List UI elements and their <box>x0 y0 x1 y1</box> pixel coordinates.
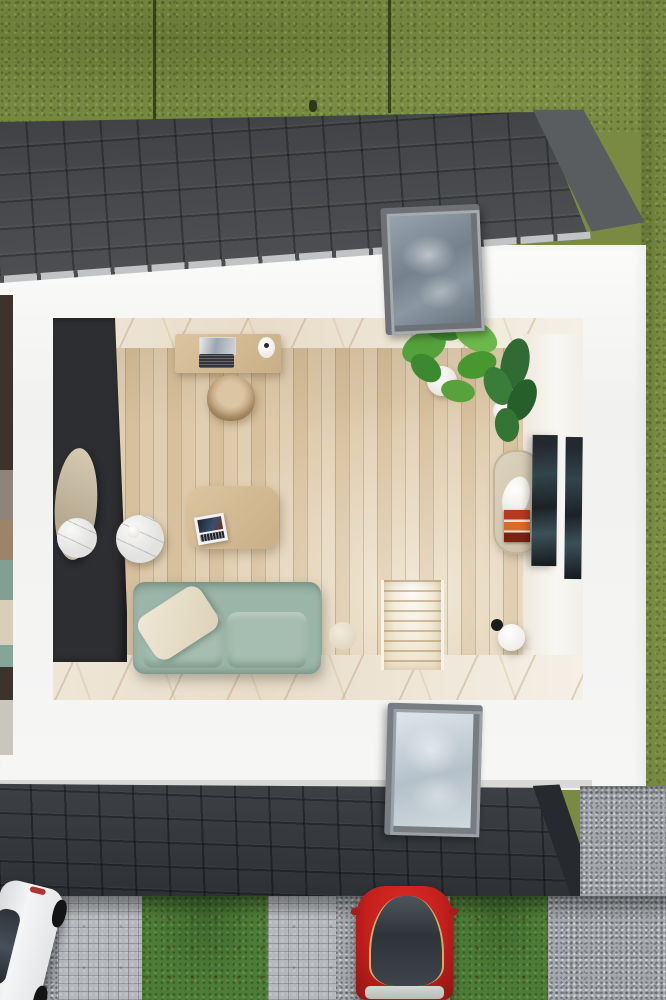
roof-shadow <box>0 896 666 918</box>
skylight-upper <box>380 204 484 335</box>
upper-roof <box>0 106 666 292</box>
magazine <box>194 513 228 546</box>
art-frame-large <box>531 435 557 566</box>
adjacent-room-sliver <box>0 295 13 755</box>
sofa <box>133 582 321 674</box>
sliver-stone <box>0 700 13 755</box>
laptop-keyboard <box>199 354 234 368</box>
driveway <box>0 896 666 1000</box>
book-stack <box>504 510 530 542</box>
skylight-lower <box>384 703 483 838</box>
paper-roll-core <box>264 343 269 348</box>
sliver-cabinet <box>0 470 13 520</box>
cup <box>127 525 140 538</box>
marble-tray <box>57 518 97 558</box>
cloud-reflection <box>412 774 463 815</box>
hedge-seam-right <box>388 0 391 113</box>
skylight-upper-frame <box>387 210 485 335</box>
red-car-mirror <box>449 908 458 915</box>
skylight-lower-glass <box>393 712 473 828</box>
skylight-lower-frame <box>390 709 482 837</box>
render-scene <box>0 0 666 1000</box>
rattan-chair <box>207 375 255 421</box>
skylight-upper-glass <box>390 213 476 325</box>
sliver-floor <box>0 600 13 645</box>
side-table <box>116 515 164 563</box>
sliver-sofa <box>0 560 13 600</box>
living-room <box>53 318 583 700</box>
cloud-reflection <box>417 274 463 311</box>
staircase-opening <box>381 580 444 670</box>
red-car-top-view <box>356 886 453 1000</box>
seat-cushion <box>227 612 307 668</box>
hedge-seam-left <box>153 0 156 120</box>
art-frame-small <box>564 437 582 579</box>
red-car-mirror <box>351 908 360 915</box>
fiddle-leaf-fig <box>483 338 553 442</box>
globe-floor-lamp <box>498 624 525 651</box>
monstera-leaf <box>439 377 476 405</box>
cloud-reflection <box>401 234 458 276</box>
red-car-front-bumper <box>365 986 444 999</box>
laptop-screen <box>199 337 236 355</box>
ball-pillow <box>329 622 357 650</box>
cloud-reflection <box>403 724 459 776</box>
lower-roof <box>0 780 666 910</box>
gravel-side-path <box>580 786 666 898</box>
sliver-wood <box>0 520 13 560</box>
sliver-sofa2 <box>0 645 13 667</box>
magazine-text <box>200 531 225 542</box>
